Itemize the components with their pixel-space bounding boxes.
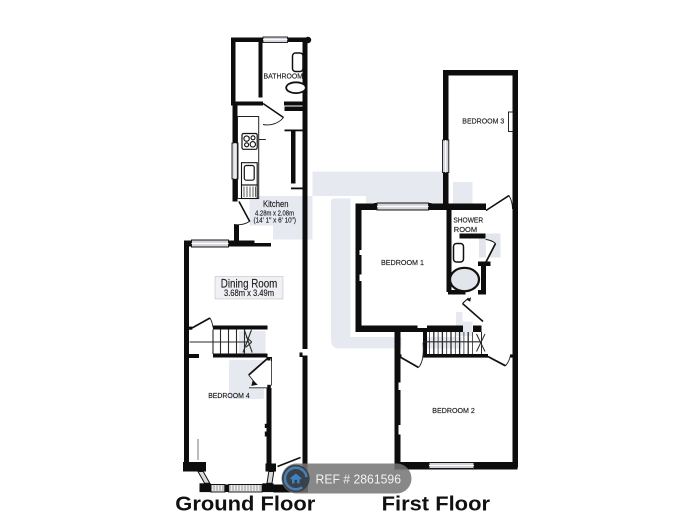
svg-text:BATHROOM: BATHROOM [264,72,304,81]
svg-text:(14' 1" x 6' 10"): (14' 1" x 6' 10") [254,215,297,224]
svg-text:BEDROOM 3: BEDROOM 3 [462,117,504,126]
svg-text:ROOM: ROOM [454,225,477,234]
svg-text:REF # 2861596: REF # 2861596 [316,472,402,487]
svg-text:Ground Floor: Ground Floor [175,494,315,516]
svg-text:BEDROOM 1: BEDROOM 1 [381,258,424,267]
svg-text:SHOWER: SHOWER [453,215,483,224]
svg-text:First Floor: First Floor [382,494,491,516]
svg-text:Kitchen: Kitchen [263,199,289,209]
svg-text:3.68m x 3.49m: 3.68m x 3.49m [224,288,274,298]
svg-text:BEDROOM 4: BEDROOM 4 [208,391,250,400]
svg-text:BEDROOM 2: BEDROOM 2 [432,406,475,415]
